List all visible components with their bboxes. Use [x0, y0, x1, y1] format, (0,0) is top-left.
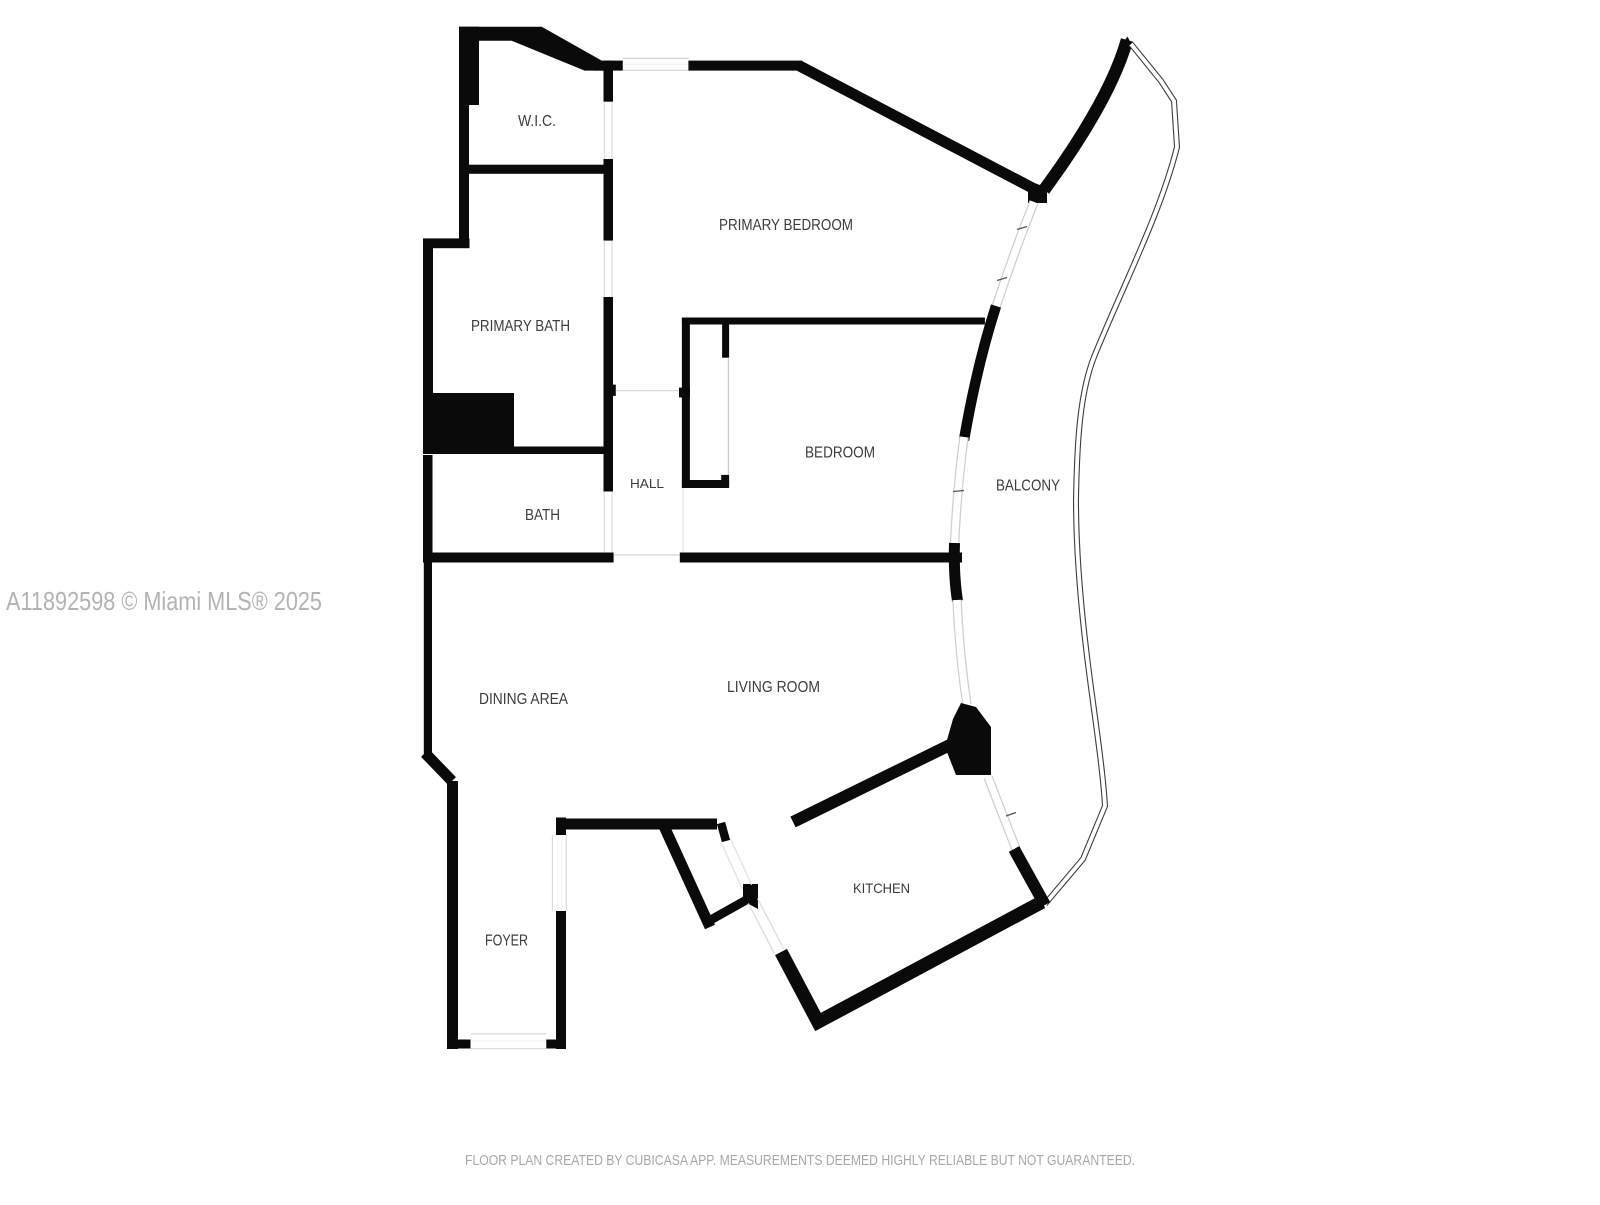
svg-text:BALCONY: BALCONY	[996, 478, 1060, 495]
svg-text:BATH: BATH	[525, 507, 560, 524]
svg-text:BEDROOM: BEDROOM	[805, 445, 875, 462]
svg-text:FLOOR PLAN CREATED BY CUBICASA: FLOOR PLAN CREATED BY CUBICASA APP. MEAS…	[465, 1152, 1135, 1169]
svg-text:DINING AREA: DINING AREA	[479, 691, 568, 708]
svg-text:W.I.C.: W.I.C.	[518, 113, 556, 130]
svg-text:A11892598 © Miami MLS® 2025: A11892598 © Miami MLS® 2025	[6, 586, 322, 616]
svg-text:PRIMARY BEDROOM: PRIMARY BEDROOM	[719, 217, 853, 234]
svg-text:HALL: HALL	[630, 477, 664, 491]
svg-text:PRIMARY BATH: PRIMARY BATH	[471, 318, 570, 335]
svg-text:FOYER: FOYER	[485, 933, 528, 950]
svg-text:KITCHEN: KITCHEN	[853, 880, 910, 896]
svg-text:LIVING ROOM: LIVING ROOM	[727, 679, 820, 696]
